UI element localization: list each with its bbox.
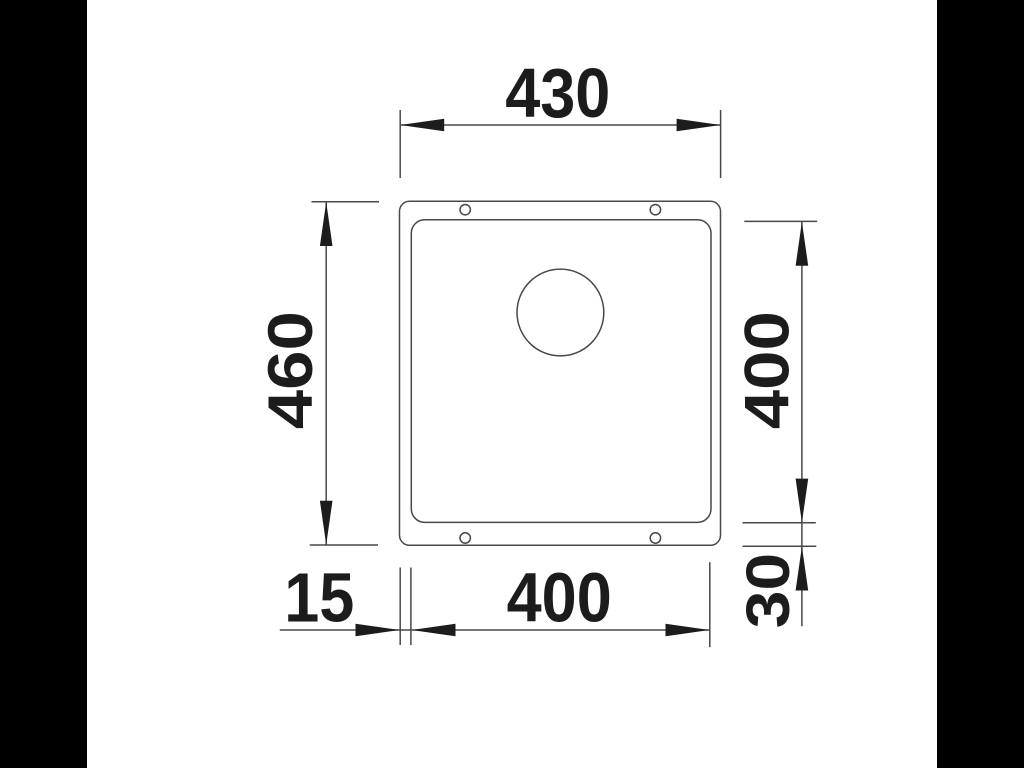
svg-text:15: 15 (284, 559, 354, 637)
svg-text:460: 460 (256, 311, 326, 429)
svg-text:30: 30 (733, 553, 802, 629)
svg-text:400: 400 (732, 311, 802, 429)
svg-text:430: 430 (505, 55, 610, 133)
svg-text:400: 400 (507, 559, 612, 637)
